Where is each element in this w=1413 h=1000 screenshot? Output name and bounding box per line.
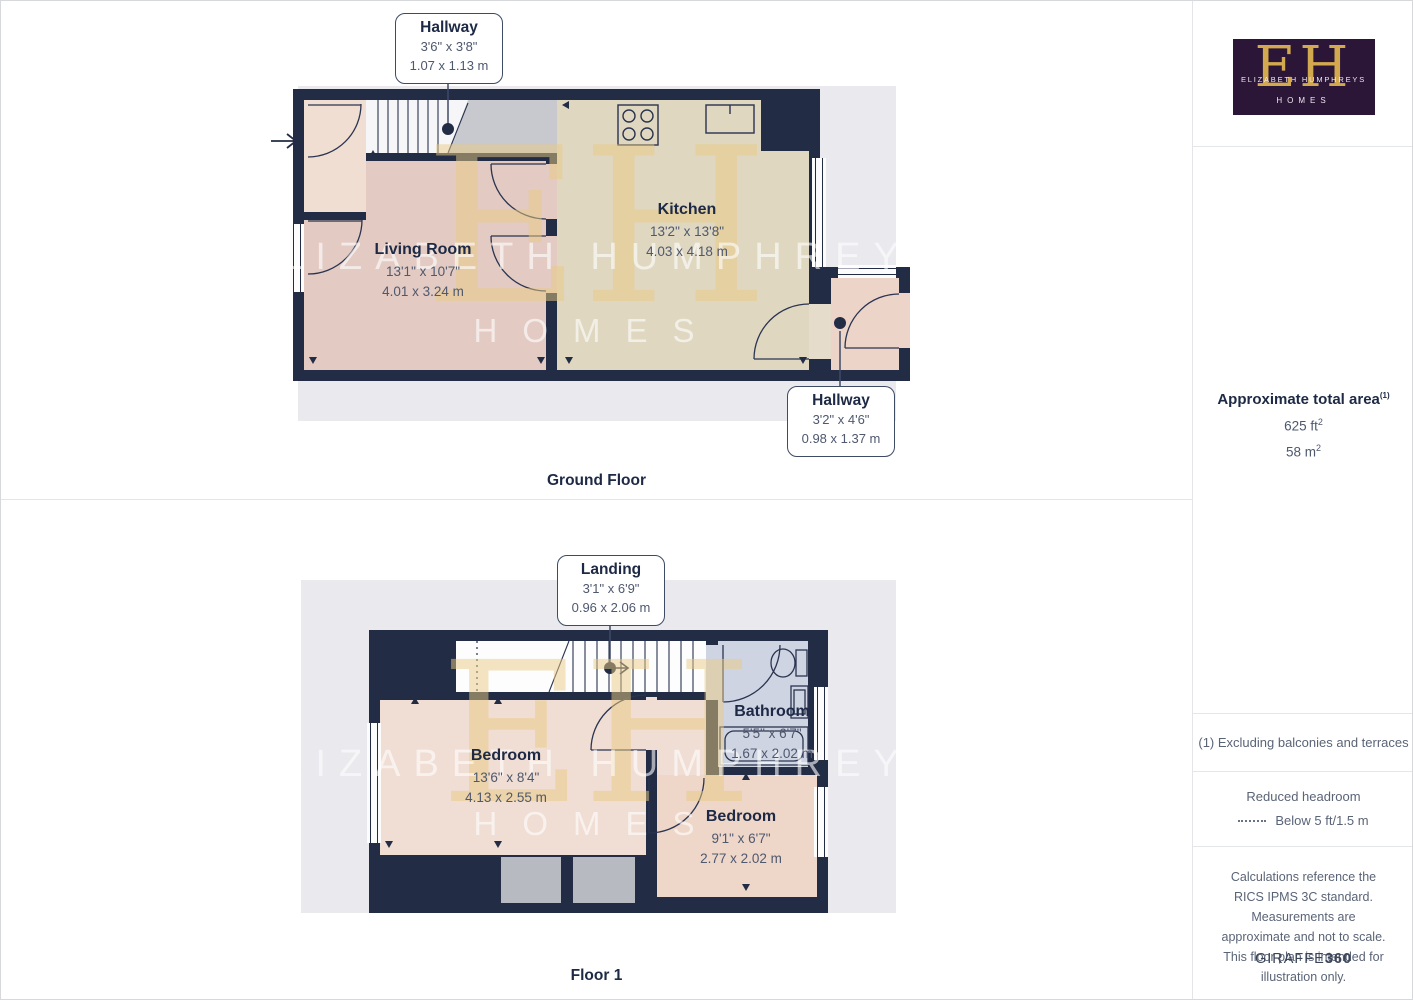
- closet-left: [501, 857, 561, 903]
- door-gap-rear-exit: [899, 293, 910, 348]
- hallway-rear-callout: Hallway 3'2" x 4'6" 0.98 x 1.37 m: [787, 386, 895, 457]
- floor1-section: EH ELIZABETH HUMPHREYS HOMES Bedroom 13'…: [1, 500, 1192, 999]
- door-gap-kitchen-rear: [809, 304, 831, 359]
- reduced-headroom-text: Below 5 ft/1.5 m: [1275, 813, 1368, 828]
- bedroom2-floor: [657, 775, 817, 897]
- logo-homes: HOMES: [1233, 96, 1375, 105]
- landing-callout: Landing 3'1" x 6'9" 0.96 x 2.06 m: [557, 555, 665, 626]
- agency-logo: EH ELIZABETH HUMPHREYS HOMES: [1233, 39, 1375, 115]
- door-gap-bedroom1: [646, 697, 657, 750]
- floor1-caption: Floor 1: [1, 967, 1192, 985]
- sidebar-divider: [1193, 146, 1413, 147]
- landing-corridor-floor: [657, 700, 706, 775]
- area-footnote: (1) Excluding balconies and terraces: [1193, 713, 1413, 771]
- ground-floor-caption: Ground Floor: [1, 472, 1192, 490]
- total-area-block: Approximate total area(1) 625 ft2 58 m2: [1193, 391, 1413, 459]
- ground-floor-section: EH ELIZABETH HUMPHREYS HOMES Living Room…: [1, 1, 1192, 500]
- bedroom1-floor: [380, 700, 646, 855]
- kitchen-corner-wall: [761, 100, 820, 151]
- door-gap-bathroom: [706, 645, 718, 700]
- newel-post: [834, 317, 846, 329]
- floorplan-page: EH ELIZABETH HUMPHREYS HOMES Living Room…: [0, 0, 1413, 1000]
- total-area-m: 58 m2: [1193, 443, 1413, 460]
- hallway-front-callout: Hallway 3'6" x 3'8" 1.07 x 1.13 m: [395, 13, 503, 84]
- newel-post: [442, 123, 454, 135]
- total-area-ft: 625 ft2: [1193, 417, 1413, 434]
- total-area-title: Approximate total area: [1217, 391, 1380, 408]
- closet-right: [573, 857, 635, 903]
- giraffe360-brand: GIRAFFE360: [1193, 951, 1413, 967]
- plans-area: EH ELIZABETH HUMPHREYS HOMES Living Room…: [1, 1, 1192, 999]
- reduced-headroom-title: Reduced headroom: [1246, 789, 1360, 804]
- reduced-headroom-area: [456, 641, 549, 692]
- hallway-front-floor: [304, 100, 366, 212]
- logo-monogram: EH: [1233, 35, 1375, 100]
- reduced-headroom-legend: Reduced headroom Below 5 ft/1.5 m: [1193, 771, 1413, 846]
- logo-name: ELIZABETH HUMPHREYS: [1233, 75, 1375, 84]
- entry-arrow-icon: [271, 134, 296, 148]
- info-sidebar: EH ELIZABETH HUMPHREYS HOMES Approximate…: [1192, 1, 1413, 999]
- dotted-line-icon: [1238, 820, 1266, 822]
- ground-floor-plan: [1, 1, 1192, 500]
